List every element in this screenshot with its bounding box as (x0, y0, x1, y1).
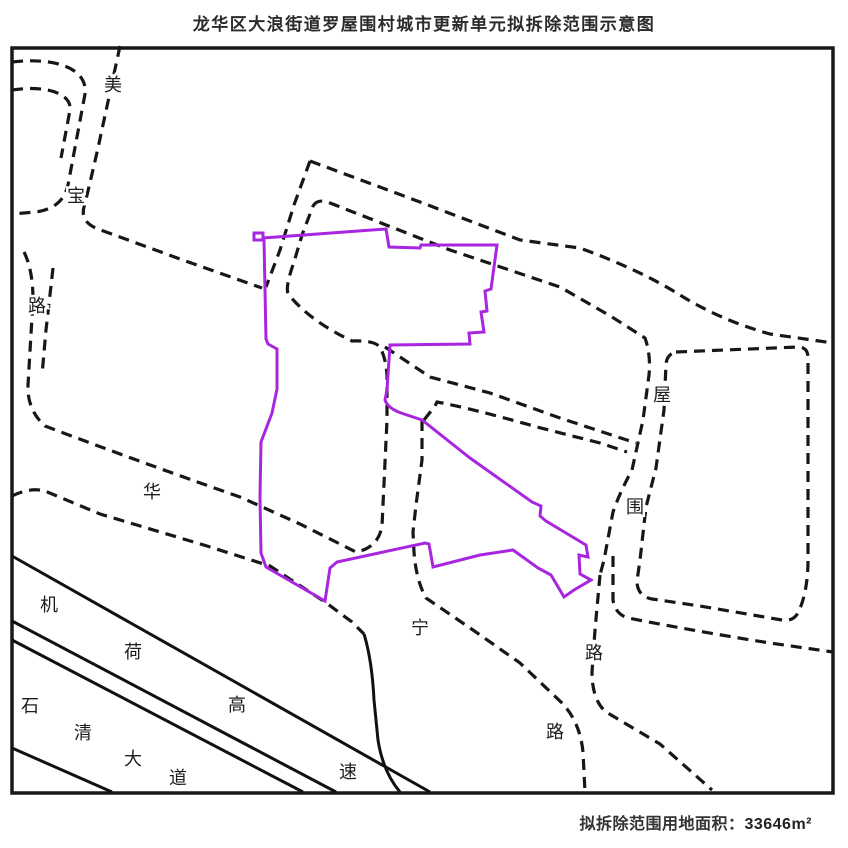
road-label-屋围路: 屋 (653, 385, 671, 405)
road-edge-nw-branch-lower (12, 89, 70, 158)
road-edge-ne-road-outer-edge (310, 161, 833, 343)
road-edge-ne-road-west-branch (266, 161, 310, 287)
road-line-shiqing-avenue-line-2 (12, 748, 112, 792)
road-edge-ne-road-inner-wuwei-west-edge (313, 201, 650, 575)
road-label-屋围路: 围 (626, 497, 644, 517)
road-label-屋围路: 路 (585, 643, 603, 663)
road-line-shiqing-avenue-line-1 (12, 640, 303, 792)
road-label-石清大道: 清 (74, 723, 92, 743)
road-label-华宁路: 路 (546, 722, 564, 742)
road-label-美宝路: 路 (28, 296, 46, 316)
area-caption-label: 拟拆除范围用地面积： (579, 816, 744, 833)
road-label-华宁路: 华 (143, 482, 161, 502)
demolition-boundary (254, 229, 591, 601)
road-label-美宝路: 宝 (67, 186, 85, 206)
road-label-机荷高速: 机 (40, 595, 58, 615)
road-edge-huaning-rd-south-edge (12, 490, 364, 634)
area-caption: 拟拆除范围用地面积：33646m² (579, 810, 812, 834)
road-label-机荷高速: 高 (228, 695, 246, 715)
road-line-ramp-curve (364, 634, 400, 792)
road-edge-meibao-south-inner-edge (42, 268, 53, 375)
road-edge-meibao-south-huaning-north-loop (24, 206, 387, 552)
road-label-石清大道: 石 (21, 696, 39, 716)
road-label-机荷高速: 荷 (124, 642, 142, 662)
road-label-华宁路: 宁 (411, 618, 429, 638)
demolition-scope-map: 美宝路华宁路屋围路机荷高速石清大道 (0, 0, 848, 848)
road-label-美宝路: 美 (104, 75, 122, 95)
road-label-石清大道: 道 (169, 768, 187, 788)
area-caption-value: 33646m² (744, 816, 812, 833)
road-label-机荷高速: 速 (339, 762, 357, 782)
road-label-石清大道: 大 (124, 749, 142, 769)
road-edge-wuwei-rd-lower-west-edge (592, 575, 712, 790)
